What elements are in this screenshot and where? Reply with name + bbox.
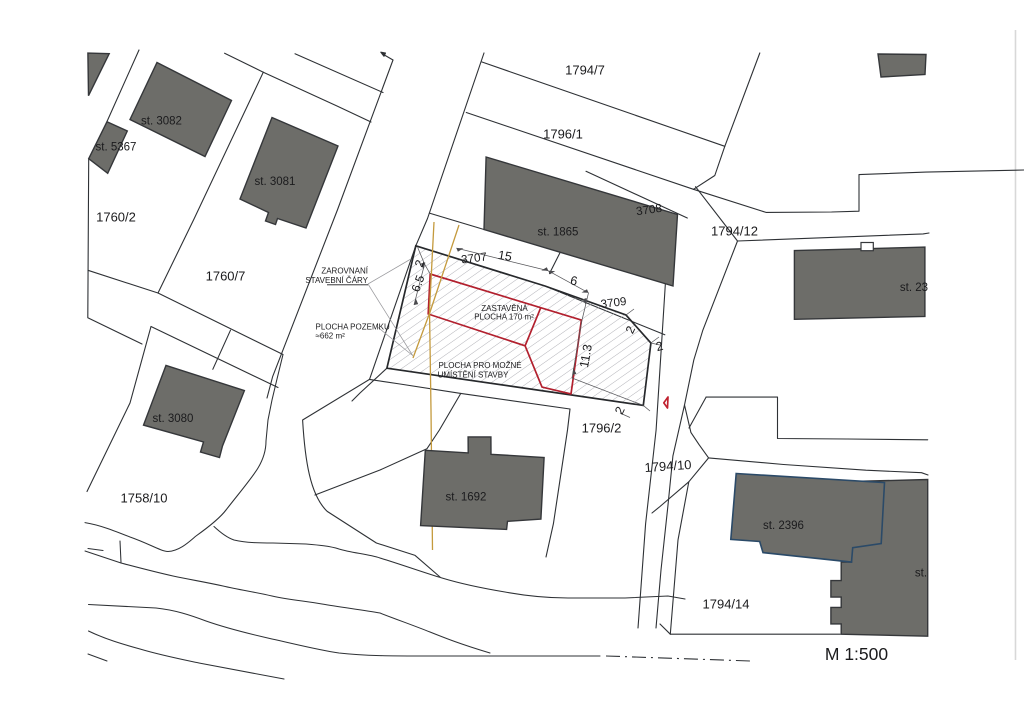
svg-text:PLOCHA PRO MOŽNÉ: PLOCHA PRO MOŽNÉ	[438, 361, 521, 370]
svg-text:ZAROVNANÍ: ZAROVNANÍ	[321, 267, 368, 276]
svg-text:1794/14: 1794/14	[703, 597, 750, 612]
svg-text:1758/10: 1758/10	[121, 491, 168, 506]
svg-text:PLOCHA POZEMKU: PLOCHA POZEMKU	[316, 323, 390, 332]
svg-text:M 1:500: M 1:500	[825, 644, 888, 664]
svg-text:15: 15	[497, 248, 513, 264]
svg-text:st.: st.	[915, 568, 927, 580]
svg-text:1796/1: 1796/1	[543, 127, 583, 142]
svg-text:st. 23: st. 23	[900, 282, 928, 294]
svg-text:1760/2: 1760/2	[96, 210, 136, 225]
svg-text:≈662 m²: ≈662 m²	[316, 332, 346, 341]
svg-text:st. 5367: st. 5367	[96, 142, 137, 154]
svg-text:PLOCHA 170 m²: PLOCHA 170 m²	[474, 313, 534, 322]
svg-text:st. 3080: st. 3080	[153, 413, 194, 425]
svg-text:1796/2: 1796/2	[582, 421, 622, 436]
svg-text:st. 3082: st. 3082	[141, 116, 182, 128]
svg-text:st. 1865: st. 1865	[538, 227, 579, 239]
svg-text:1794/12: 1794/12	[711, 224, 758, 239]
svg-text:st. 1692: st. 1692	[446, 492, 487, 504]
svg-text:UMÍSTĚNÍ STAVBY: UMÍSTĚNÍ STAVBY	[438, 371, 509, 380]
svg-text:st. 3081: st. 3081	[255, 176, 296, 188]
svg-text:st. 2396: st. 2396	[763, 520, 804, 532]
svg-text:STAVEBNÍ ČÁRY: STAVEBNÍ ČÁRY	[305, 276, 368, 285]
svg-text:1760/7: 1760/7	[206, 269, 246, 284]
svg-text:1794/7: 1794/7	[565, 63, 605, 78]
